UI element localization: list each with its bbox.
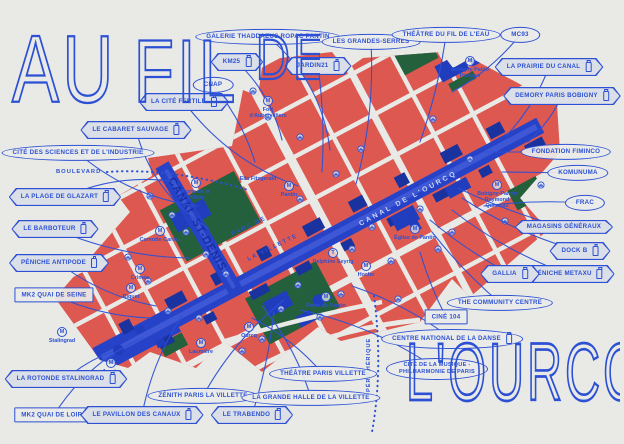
callout-label: FRAC bbox=[576, 200, 594, 206]
bottle-icon bbox=[585, 62, 591, 72]
callout-label: THE COMMUNITY CENTRE bbox=[458, 300, 542, 306]
svg-text:AU FIL DE: AU FIL DE bbox=[12, 15, 320, 122]
callout-peniche-antipode: PÉNICHE ANTIPODE bbox=[9, 254, 109, 272]
callout-label: THÉÂTRE PARIS VILLETTE bbox=[280, 371, 366, 377]
callout-label: LE TRABENDO bbox=[223, 412, 270, 418]
svg-text:L'OURCQ: L'OURCQ bbox=[406, 327, 620, 418]
callout-le-barboteur: LE BARBOTEUR bbox=[11, 220, 98, 238]
bottle-icon bbox=[81, 224, 87, 234]
callout-label: THÉÂTRE DU FIL DE L'EAU bbox=[403, 32, 490, 38]
poster-title-bottom: L'OURCQ bbox=[404, 316, 620, 434]
callout-frac: FRAC bbox=[565, 195, 605, 211]
bottle-icon bbox=[333, 61, 339, 71]
bottle-icon bbox=[186, 410, 192, 420]
bottle-icon bbox=[109, 374, 115, 384]
callout-label: LE CABARET SAUVAGE bbox=[92, 127, 168, 133]
callout-label: MK2 QUAI DE LOIRE bbox=[21, 412, 86, 418]
callout-label: LA GRANDE HALLE DE LA VILLETTE bbox=[252, 395, 369, 401]
callout-theatre-du-fil-de-l-eau: THÉÂTRE DU FIL DE L'EAU bbox=[392, 27, 501, 43]
callout-label: DOCK B bbox=[562, 248, 588, 254]
callout-la-grande-halle-de-la-villette: LA GRANDE HALLE DE LA VILLETTE bbox=[241, 390, 380, 406]
callout-label: LE PAVILLON DES CANAUX bbox=[92, 412, 180, 418]
callout-le-trabendo: LE TRABENDO bbox=[211, 406, 293, 424]
callout-cite-des-sciences-et-de-l-industrie: CITÉ DES SCIENCES ET DE L'INDUSTRIE bbox=[2, 145, 155, 161]
bottle-icon bbox=[174, 125, 180, 135]
callout-la-rotonde-stalingrad: LA ROTONDE STALINGRAD bbox=[5, 370, 128, 388]
bottle-icon bbox=[91, 258, 97, 268]
poster-title-top: AU FIL DE bbox=[10, 14, 320, 126]
bottle-icon bbox=[103, 192, 109, 202]
callout-the-community-centre: THE COMMUNITY CENTRE bbox=[447, 295, 553, 311]
callout-le-pavillon-des-canaux: LE PAVILLON DES CANAUX bbox=[80, 406, 203, 424]
bottle-icon bbox=[522, 269, 528, 279]
poster-canvas: CANAL DE L'OURCQ CANAL ST-DENIS PARC DE bbox=[0, 0, 624, 444]
callout-label: LA ROTONDE STALINGRAD bbox=[17, 376, 105, 382]
callout-label: CITÉ DES SCIENCES ET DE L'INDUSTRIE bbox=[13, 150, 144, 156]
bottle-icon bbox=[597, 269, 603, 279]
bottle-icon bbox=[592, 246, 598, 256]
callout-label: MK2 QUAI DE SEINE bbox=[21, 292, 86, 298]
callout-theatre-paris-villette: THÉÂTRE PARIS VILLETTE bbox=[269, 366, 377, 382]
callout-mc93: MC93 bbox=[500, 27, 540, 43]
callout-komunuma: KOMUNUMA bbox=[547, 165, 608, 181]
callout-fondation-fiminco: FONDATION FIMINCO bbox=[521, 144, 611, 160]
callout-label: MAGASINS GÉNÉRAUX bbox=[527, 224, 601, 230]
callout-label: LE BARBOTEUR bbox=[23, 226, 75, 232]
callout-label: KOMUNUMA bbox=[558, 170, 597, 176]
callout-label: LA PRAIRIE DU CANAL bbox=[507, 64, 581, 70]
bottle-icon bbox=[275, 410, 281, 420]
callout-label: ZÉNITH PARIS LA VILLETTE bbox=[158, 393, 247, 399]
callout-label: DEMORY PARIS BOBIGNY bbox=[515, 93, 598, 99]
callout-magasins-generaux: MAGASINS GÉNÉRAUX bbox=[515, 220, 613, 234]
callout-demory-paris-bobigny: DEMORY PARIS BOBIGNY bbox=[503, 87, 621, 105]
callout-label: LES GRANDES-SERRES bbox=[333, 39, 410, 45]
callout-gallia: GALLIA bbox=[480, 265, 540, 283]
bottle-icon bbox=[603, 91, 609, 101]
callout-la-prairie-du-canal: LA PRAIRIE DU CANAL bbox=[495, 58, 604, 76]
callout-label: PÉNICHE ANTIPODE bbox=[21, 260, 86, 266]
callout-la-plage-de-glazart: LA PLAGE DE GLAZART bbox=[9, 188, 121, 206]
callout-label: FONDATION FIMINCO bbox=[532, 149, 600, 155]
callout-dock-b: DOCK B bbox=[550, 242, 611, 260]
callout-label: PÉNICHE METAXU bbox=[533, 271, 591, 277]
callout-label: GALLIA bbox=[492, 271, 517, 277]
callout-label: MC93 bbox=[511, 32, 529, 38]
callout-mk2-quai-de-seine: MK2 QUAI DE SEINE bbox=[14, 287, 93, 302]
callout-label: LA PLAGE DE GLAZART bbox=[21, 194, 98, 200]
